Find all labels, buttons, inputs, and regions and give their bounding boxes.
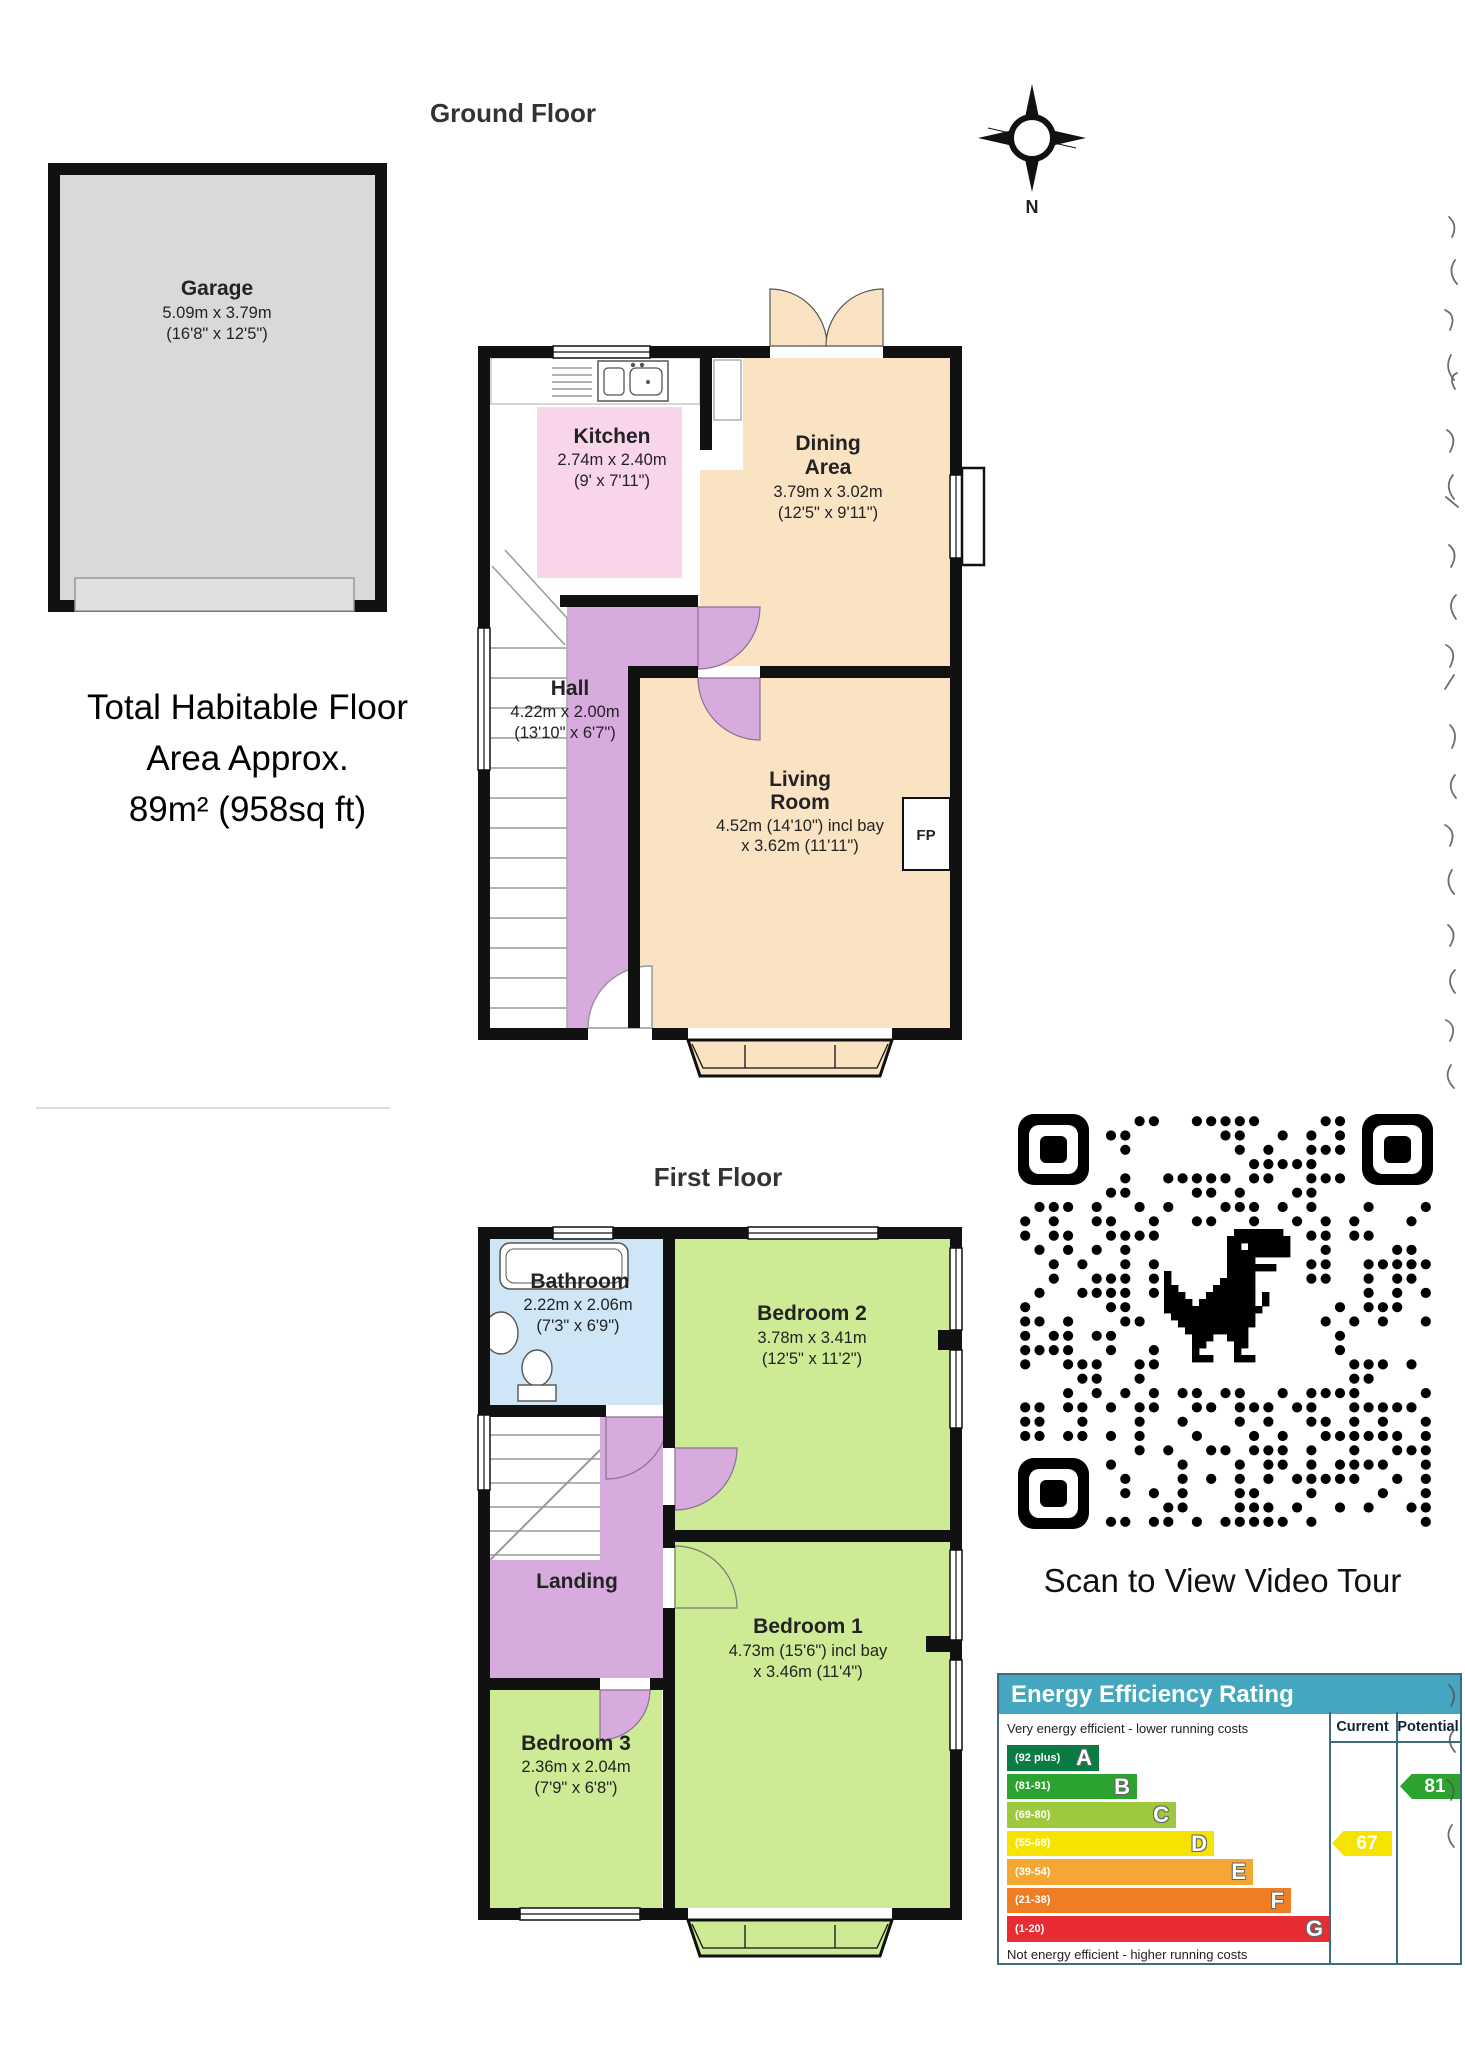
ground-floor-plan: FP Kitchen 2.74m x 2.40m (9' x 7'11") Di… [455,280,1005,1110]
qr-code [1018,1114,1433,1529]
landing-label: Landing [536,1570,618,1593]
qr-finder-pattern [1018,1458,1089,1529]
epc-top-note: Very energy efficient - lower running co… [1007,1721,1248,1736]
compass-rose-icon: N [950,60,1120,225]
epc-chart: Energy Efficiency Rating Very energy eff… [997,1673,1462,1965]
qr-dino-logo [1164,1229,1290,1362]
bay-window-ground [688,1040,892,1076]
qr-caption: Scan to View Video Tour [1005,1562,1440,1600]
svg-text:4.52m (14'10") incl bay: 4.52m (14'10") incl bay [716,817,884,835]
qr-finder-pattern [1362,1114,1433,1185]
floorplan-page: Ground Floor First Floor N Garage 5.09m … [0,0,1465,2048]
svg-text:Room: Room [770,791,830,814]
ground-floor-title: Ground Floor [430,98,596,129]
bedroom2-label: Bedroom 2 [757,1302,867,1325]
toilet [522,1350,552,1386]
svg-text:3.78m x 3.41m: 3.78m x 3.41m [757,1329,866,1347]
garage-door [75,578,354,611]
svg-text:(7'3" x 6'9"): (7'3" x 6'9") [536,1317,619,1335]
kitchen-label: Kitchen [573,425,650,448]
staircase-first [490,1417,600,1560]
epc-band-D: (55-68)D [1007,1831,1214,1857]
svg-text:(12'5" x 11'2"): (12'5" x 11'2") [762,1350,862,1368]
svg-text:2.36m x 2.04m: 2.36m x 2.04m [521,1758,630,1776]
svg-text:x 3.46m (11'4"): x 3.46m (11'4") [753,1663,863,1681]
french-door-left [770,289,827,346]
epc-bottom-note: Not energy efficient - higher running co… [1007,1947,1247,1962]
epc-title: Energy Efficiency Rating [999,1675,1460,1714]
garage-label: Garage [181,277,253,300]
svg-text:(9' x 7'11"): (9' x 7'11") [574,472,650,490]
bedroom3-label: Bedroom 3 [521,1732,631,1755]
svg-text:3.79m x 3.02m: 3.79m x 3.02m [773,483,882,501]
epc-band-G: (1-20)G [1007,1916,1330,1942]
epc-divider-1 [1329,1712,1331,1963]
first-floor-title: First Floor [654,1162,783,1193]
epc-band-C: (69-80)C [1007,1802,1176,1828]
svg-text:(7'9" x 6'8"): (7'9" x 6'8") [534,1779,617,1797]
epc-band-A: (92 plus)A [1007,1745,1099,1771]
epc-band-F: (21-38)F [1007,1888,1291,1914]
epc-col-current: Current [1329,1719,1396,1735]
epc-bands: (92 plus)A(81-91)B(69-80)C(55-68)D(39-54… [1007,1745,1330,1945]
svg-text:(12'5" x 9'11"): (12'5" x 9'11") [778,504,878,522]
svg-text:4.73m (15'6") incl bay: 4.73m (15'6") incl bay [729,1642,888,1660]
section-divider [36,1107,390,1109]
first-floor-plan: Bathroom 2.22m x 2.06m (7'3" x 6'9") Bed… [455,1195,1005,1995]
living-room-label: Living [769,768,831,791]
svg-text:x 3.62m (11'11"): x 3.62m (11'11") [741,837,859,855]
total-area-note: Total Habitable Floor Area Approx. 89m² … [40,682,455,835]
fireplace-label: FP [916,827,935,844]
garage-dims: 5.09m x 3.79m [162,304,271,322]
garage-dims-ft: (16'8" x 12'5") [166,325,267,343]
epc-band-E: (39-54)E [1007,1859,1253,1885]
qr-finder-pattern [1018,1114,1089,1185]
epc-current-arrow: 67 [1332,1831,1392,1857]
svg-text:(13'10" x 6'7"): (13'10" x 6'7") [514,724,615,742]
compass-n-label: N [1026,197,1039,217]
staircase-ground [490,550,567,1028]
epc-band-B: (81-91)B [1007,1774,1137,1800]
bay-window-first [688,1920,892,1956]
garage-plan: Garage 5.09m x 3.79m (16'8" x 12'5") [40,150,400,630]
bathroom-label: Bathroom [530,1270,629,1293]
svg-text:Area: Area [805,456,852,479]
handwritten-notes-clipped [1437,205,1465,1865]
svg-text:4.22m x 2.00m: 4.22m x 2.00m [510,703,619,721]
bedroom1-label: Bedroom 1 [753,1615,863,1638]
hall-label: Hall [551,677,590,700]
svg-text:2.22m x 2.06m: 2.22m x 2.06m [523,1296,632,1314]
garage-room [54,169,381,606]
dining-label: Dining [795,432,860,455]
svg-text:2.74m x 2.40m: 2.74m x 2.40m [557,451,666,469]
epc-divider-2 [1396,1712,1398,1963]
dining-window-bay [962,468,984,565]
french-door-right [826,289,883,346]
